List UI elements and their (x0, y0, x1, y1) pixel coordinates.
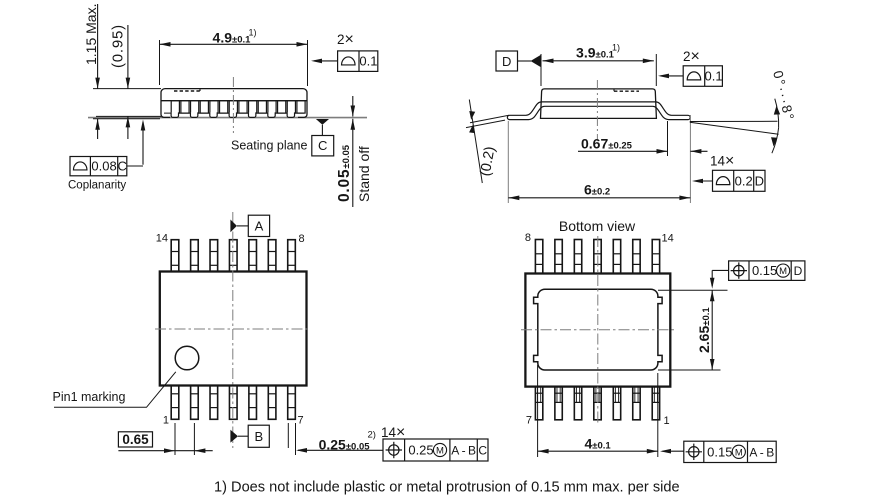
svg-text:14: 14 (662, 233, 674, 245)
svg-text:0.1: 0.1 (705, 69, 723, 84)
svg-text:A: A (255, 219, 264, 234)
svg-text:Bottom view: Bottom view (559, 218, 636, 234)
svg-text:7: 7 (298, 415, 304, 427)
svg-text:A - B: A - B (451, 444, 476, 458)
svg-text:1.15 Max.: 1.15 Max. (83, 4, 99, 65)
svg-text:8: 8 (525, 232, 531, 244)
svg-text:M: M (779, 266, 787, 277)
svg-text:D: D (794, 264, 803, 278)
svg-text:0.08: 0.08 (91, 159, 116, 174)
svg-text:1: 1 (163, 415, 169, 427)
svg-text:0.1: 0.1 (359, 54, 377, 69)
svg-text:14: 14 (156, 233, 168, 245)
svg-text:1) Does not include plastic or: 1) Does not include plastic or metal pro… (214, 480, 680, 495)
svg-text:M: M (436, 446, 444, 457)
svg-text:7: 7 (526, 415, 532, 427)
svg-text:D: D (755, 173, 764, 188)
svg-text:Pin1 marking: Pin1 marking (53, 390, 126, 404)
svg-text:Stand off: Stand off (356, 146, 372, 202)
svg-text:0.15: 0.15 (707, 444, 732, 459)
svg-text:B: B (254, 429, 263, 444)
svg-text:0.25: 0.25 (408, 443, 433, 458)
svg-text:1: 1 (664, 415, 670, 427)
svg-text:14×: 14× (710, 153, 734, 170)
svg-text:Seating plane: Seating plane (231, 139, 308, 153)
svg-text:0.2: 0.2 (735, 173, 753, 188)
svg-text:Coplanarity: Coplanarity (68, 180, 126, 192)
svg-text:0.15: 0.15 (752, 263, 777, 278)
svg-text:D: D (502, 54, 511, 69)
svg-text:(0.95): (0.95) (110, 24, 127, 68)
svg-text:2×: 2× (337, 31, 354, 48)
svg-text:C: C (478, 444, 487, 458)
svg-text:M: M (735, 447, 743, 458)
svg-text:C: C (318, 138, 327, 153)
svg-text:A - B: A - B (749, 445, 774, 459)
svg-text:2): 2) (368, 430, 376, 441)
svg-text:C: C (118, 159, 127, 174)
svg-text:0.65: 0.65 (122, 432, 149, 447)
svg-text:2×: 2× (683, 48, 700, 65)
svg-text:8: 8 (299, 233, 305, 245)
